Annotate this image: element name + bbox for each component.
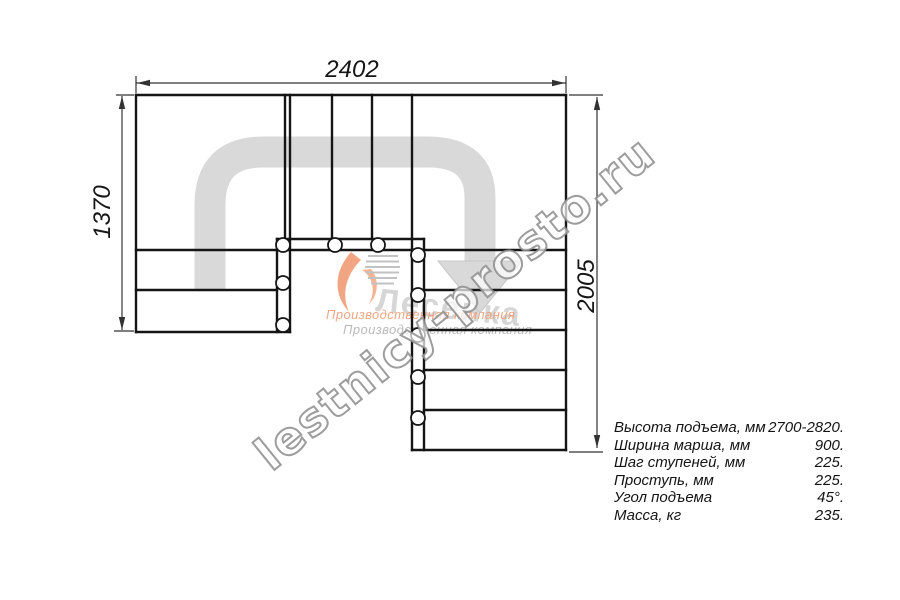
spec-label: Высота подъема, мм [614, 419, 766, 437]
spec-value: 900. [815, 437, 844, 455]
spec-value: 235. [815, 507, 844, 525]
dim-right-label: 2005 [573, 259, 601, 312]
spec-label: Угол подъема [614, 489, 712, 507]
spec-label: Ширина марша, мм [614, 437, 750, 455]
spec-row-tread: Проступь, мм 225. [614, 472, 844, 490]
spec-row-step-pitch: Шаг ступеней, мм 225. [614, 454, 844, 472]
spec-value: 45°. [817, 489, 844, 507]
spec-value: 2700-2820. [768, 419, 844, 437]
spec-row-mass: Масса, кг 235. [614, 507, 844, 525]
staircase-drawing-page: Лесенка Производственная компания Произв… [0, 0, 900, 600]
spec-value: 225. [815, 454, 844, 472]
spec-label: Проступь, мм [614, 472, 714, 490]
spec-row-height: Высота подъема, мм 2700-2820. [614, 419, 844, 437]
spec-value: 225. [815, 472, 844, 490]
spec-row-flight-width: Ширина марша, мм 900. [614, 437, 844, 455]
spec-label: Масса, кг [614, 507, 681, 525]
spec-row-angle: Угол подъема 45°. [614, 489, 844, 507]
dim-left-label: 1370 [89, 185, 117, 238]
dim-top-label: 2402 [297, 56, 407, 84]
spec-table: Высота подъема, мм 2700-2820. Ширина мар… [614, 419, 844, 524]
spec-label: Шаг ступеней, мм [614, 454, 745, 472]
